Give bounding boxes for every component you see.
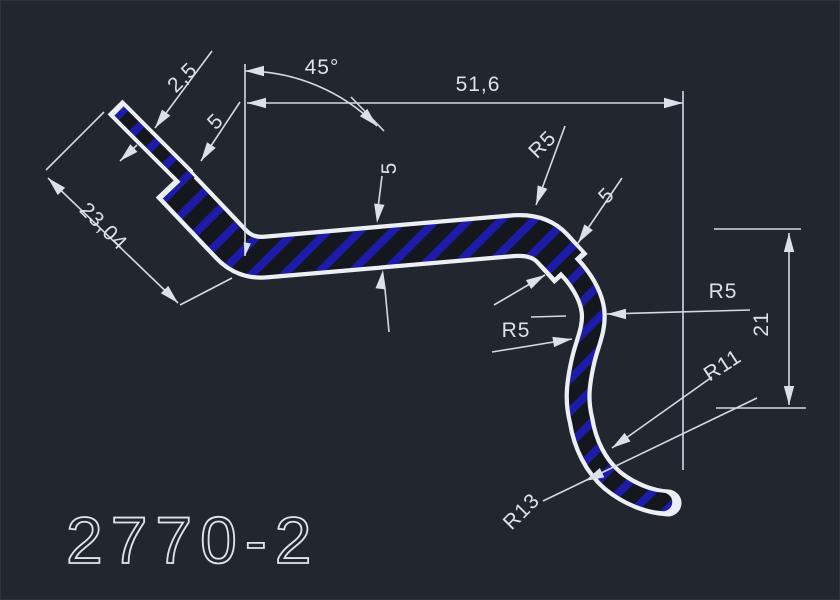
dim-label-s-radius: R5 [502,319,531,343]
dim-label-angle: 45° [305,56,340,80]
dim-label-hook-height: 21 [750,311,774,336]
dim-label-overall-width: 51,6 [456,73,501,97]
dim-label-right-radius: R5 [709,280,738,304]
drawing-title: 2770-2 [66,502,320,578]
dim-label-web-thickness: 5 [378,162,402,175]
cad-viewport: 2,5 45° 51,6 5 23,04 5 R5 5 R5 R5 21 R11… [0,0,840,600]
dimension-arrows [44,66,794,486]
